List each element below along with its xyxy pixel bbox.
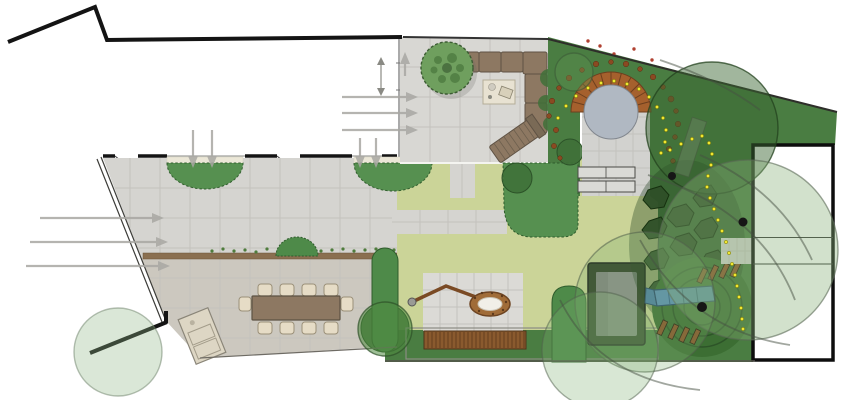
- threshold-left: [167, 157, 243, 164]
- hanging-chair-patio: [408, 273, 523, 331]
- dining-chair: [341, 297, 353, 311]
- north-boundary-wall: [8, 7, 402, 42]
- plate: [489, 84, 496, 91]
- shrub: [557, 139, 583, 165]
- speckle: [221, 247, 224, 250]
- stand-base: [408, 298, 416, 306]
- outdoor-rug: [483, 80, 515, 104]
- deck-bench: [424, 331, 526, 349]
- path-marker: [739, 306, 742, 309]
- path-marker: [668, 148, 671, 151]
- path-marker: [708, 196, 711, 199]
- dining-chair: [239, 297, 251, 311]
- path-marker: [730, 262, 733, 265]
- path-marker: [710, 152, 713, 155]
- path-marker: [712, 207, 715, 210]
- planting-dot: [609, 60, 614, 65]
- low-wall-strip: [143, 253, 397, 259]
- path-marker: [655, 105, 658, 108]
- cup: [488, 95, 492, 99]
- speckle: [352, 249, 355, 252]
- speckle: [254, 250, 257, 253]
- path-marker: [556, 116, 559, 119]
- path-marker: [625, 82, 628, 85]
- speckle: [210, 249, 213, 252]
- berry-dot: [650, 58, 653, 61]
- path-marker: [727, 251, 730, 254]
- path-marker: [612, 79, 615, 82]
- canopy-pond-left: [555, 53, 593, 91]
- path-marker: [663, 140, 666, 143]
- berry-dot: [586, 39, 589, 42]
- path-marker: [664, 128, 667, 131]
- planting-dot: [623, 61, 629, 67]
- path-marker: [690, 137, 693, 140]
- path-marker: [700, 134, 703, 137]
- path-marker: [705, 185, 708, 188]
- dining-chair: [302, 322, 316, 334]
- planting-dot: [553, 127, 558, 132]
- dining-chair: [280, 322, 294, 334]
- dining-chair: [302, 284, 316, 296]
- canopy-bottom-center: [542, 292, 658, 400]
- path-marker: [564, 104, 567, 107]
- path-marker: [659, 151, 662, 154]
- canopy-hedge-left: [358, 302, 412, 356]
- path-marker: [716, 218, 719, 221]
- planting-dot: [547, 114, 552, 119]
- path-marker: [706, 174, 709, 177]
- tree-trunk-dot: [668, 172, 676, 180]
- path-marker: [733, 273, 736, 276]
- canopy-bottom-left: [74, 308, 162, 396]
- garden-plan-canvas: [0, 0, 843, 400]
- terrace: [400, 37, 558, 165]
- berry-dot: [632, 47, 635, 50]
- speckle: [265, 247, 268, 250]
- planting-dot: [650, 74, 656, 80]
- path-marker: [740, 317, 743, 320]
- tree-trunk-dot: [739, 218, 748, 227]
- berry-dot: [598, 44, 601, 47]
- dining-table: [252, 296, 340, 320]
- path-marker: [720, 229, 723, 232]
- speckle: [232, 249, 235, 252]
- dining-chair: [258, 322, 272, 334]
- dining-chair: [258, 284, 272, 296]
- circular-pond: [584, 85, 638, 139]
- planting-dot: [549, 98, 555, 104]
- planting-dot: [551, 143, 556, 148]
- dining-chair: [324, 322, 338, 334]
- path-marker: [661, 116, 664, 119]
- speckle: [319, 249, 322, 252]
- path-marker: [599, 81, 602, 84]
- path-marker: [737, 295, 740, 298]
- speckle: [243, 248, 246, 251]
- path-marker: [574, 94, 577, 97]
- planting-dot: [593, 61, 599, 67]
- path-marker: [679, 142, 682, 145]
- planting-dot: [558, 156, 562, 160]
- path-marker: [735, 284, 738, 287]
- path-marker: [707, 141, 710, 144]
- speckle: [341, 247, 344, 250]
- path-marker: [741, 327, 744, 330]
- path-marker: [724, 240, 727, 243]
- speckle: [363, 248, 366, 251]
- speckle: [330, 248, 333, 251]
- path-marker: [586, 86, 589, 89]
- chair-seat: [478, 298, 502, 311]
- tree-trunk-dot: [697, 302, 707, 312]
- planting-dot: [638, 67, 643, 72]
- path-marker: [709, 163, 712, 166]
- dining-chair: [324, 284, 338, 296]
- garden-plan-drawing: [0, 0, 843, 400]
- shrub: [502, 163, 532, 193]
- dining-chair: [280, 284, 294, 296]
- path-marker: [647, 95, 650, 98]
- path-marker: [637, 87, 640, 90]
